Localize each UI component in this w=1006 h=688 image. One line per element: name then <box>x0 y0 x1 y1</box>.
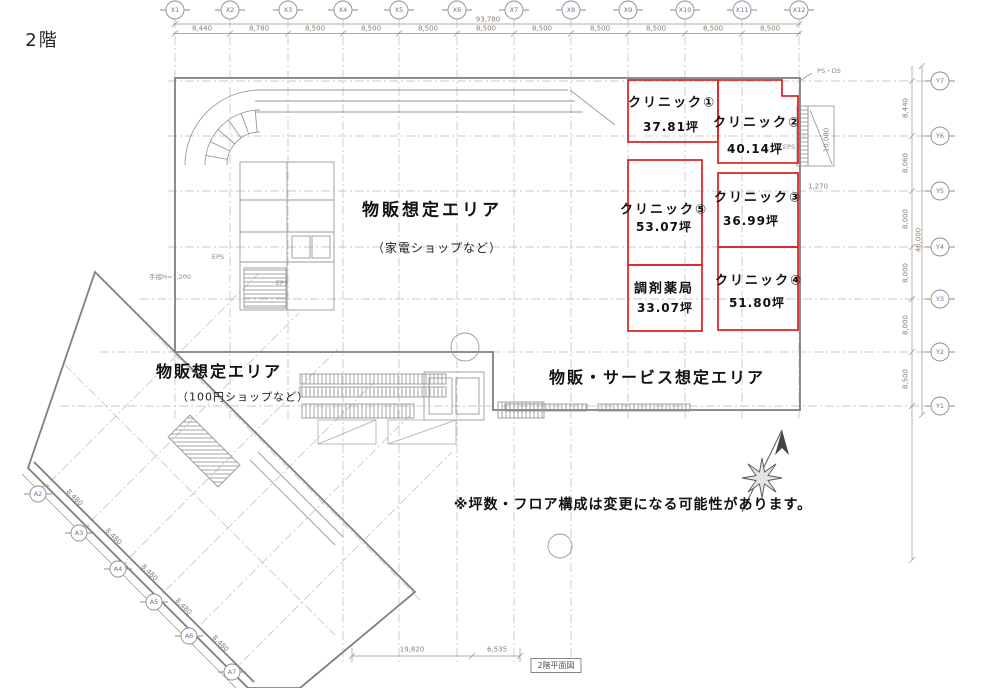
dim-top-3: 8,500 <box>305 26 325 33</box>
eps-label-core1: EPS <box>212 254 224 261</box>
floor-plan-canvas <box>0 0 1006 688</box>
dim-bottom-2: 6,535 <box>487 647 507 654</box>
unit-clinic3-name: クリニック③ <box>714 192 802 205</box>
area-service-label: 物販・サービス想定エリア <box>549 370 765 386</box>
axis-x9: X9 <box>624 7 633 14</box>
dim-top-9: 8,500 <box>646 26 666 33</box>
dim-top-1: 8,440 <box>192 26 212 33</box>
area-wing-sublabel: （100円ショップなど） <box>177 392 309 403</box>
unit-clinic2-name: クリニック② <box>713 117 801 130</box>
dim-right-total: 46,000 <box>916 228 923 253</box>
axis-y6: Y6 <box>936 133 944 140</box>
unit-clinic1-size: 37.81坪 <box>643 121 699 133</box>
axis-x1: X1 <box>171 7 180 14</box>
axis-x3: X3 <box>284 7 293 14</box>
axis-x4: X4 <box>339 7 348 14</box>
axis-x8: X8 <box>567 7 576 14</box>
unit-clinic5-size: 53.07坪 <box>636 221 692 233</box>
unit-clinic1-name: クリニック① <box>628 97 716 110</box>
eps-label-core2: EPS <box>276 280 288 287</box>
axis-x12: X12 <box>793 7 806 14</box>
axis-a2: A2 <box>34 491 43 498</box>
unit-pharmacy-size: 33.07坪 <box>637 302 693 314</box>
axis-y4: Y4 <box>936 244 944 251</box>
floor-plan-page: 2階 X1 X2 X3 X4 X5 X6 X7 X8 X9 X10 X11 X1… <box>0 0 1006 688</box>
axis-x7: X7 <box>510 7 519 14</box>
axis-x11: X11 <box>736 7 749 14</box>
dim-top-10: 8,500 <box>703 26 723 33</box>
axis-x2: X2 <box>226 7 235 14</box>
dim-offset: 1,270 <box>808 184 828 191</box>
dim-top-4: 8,500 <box>361 26 381 33</box>
dim-top-2: 8,780 <box>249 26 269 33</box>
dim-top-6: 8,500 <box>476 26 496 33</box>
disclaimer-note: ※坪数・フロア構成は変更になる可能性があります。 <box>454 498 812 512</box>
area-wing-label: 物販想定エリア <box>156 364 282 380</box>
area-main-sublabel: （家電ショップなど） <box>372 242 502 254</box>
dim-right-5: 8,000 <box>903 315 910 335</box>
dim-right-6: 8,500 <box>903 369 910 389</box>
dim-top-total: 93,780 <box>476 17 501 24</box>
eps-label-right: EPS <box>783 144 795 151</box>
dim-bottom-1: 19,820 <box>400 647 425 654</box>
axis-y3: Y3 <box>936 296 944 303</box>
area-main-label: 物販想定エリア <box>362 203 502 220</box>
unit-clinic4-name: クリニック④ <box>715 275 803 288</box>
axis-a4: A4 <box>114 566 123 573</box>
dim-top-11: 8,500 <box>760 26 780 33</box>
unit-clinic2-size: 40.14坪 <box>727 143 783 155</box>
unit-pharmacy-name: 調剤薬局 <box>634 283 694 296</box>
unit-clinic3-size: 36.99坪 <box>723 215 779 227</box>
plan-caption: 2階平面図 <box>530 658 581 673</box>
axis-a5: A5 <box>150 599 159 606</box>
dim-top-5: 8,500 <box>418 26 438 33</box>
dim-right-3: 8,000 <box>903 209 910 229</box>
axis-x10: X10 <box>679 7 692 14</box>
dim-top-7: 8,500 <box>532 26 552 33</box>
unit-clinic4-size: 51.80坪 <box>729 297 785 309</box>
dim-top-8: 8,500 <box>590 26 610 33</box>
dim-stair-width: 10,080 <box>824 128 831 153</box>
dim-right-4: 8,000 <box>903 263 910 283</box>
axis-y1: Y1 <box>936 403 944 410</box>
plan-caption-box: 2階平面図 <box>530 655 581 671</box>
axis-x6: X6 <box>453 7 462 14</box>
dim-right-1: 8,440 <box>903 98 910 118</box>
dim-right-2: 8,060 <box>903 153 910 173</box>
axis-a6: A6 <box>185 633 194 640</box>
axis-x5: X5 <box>395 7 404 14</box>
unit-clinic5-name: クリニック⑤ <box>620 204 708 217</box>
handrail-label: 手摺H=1,200 <box>149 274 191 281</box>
axis-a3: A3 <box>75 530 84 537</box>
axis-y2: Y2 <box>936 349 944 356</box>
floor-title: 2階 <box>25 32 58 50</box>
axis-y5: Y5 <box>936 188 944 195</box>
axis-a7: A7 <box>228 669 237 676</box>
axis-y7: Y7 <box>936 78 944 85</box>
ps-ds-label: PS・DS <box>817 68 841 75</box>
